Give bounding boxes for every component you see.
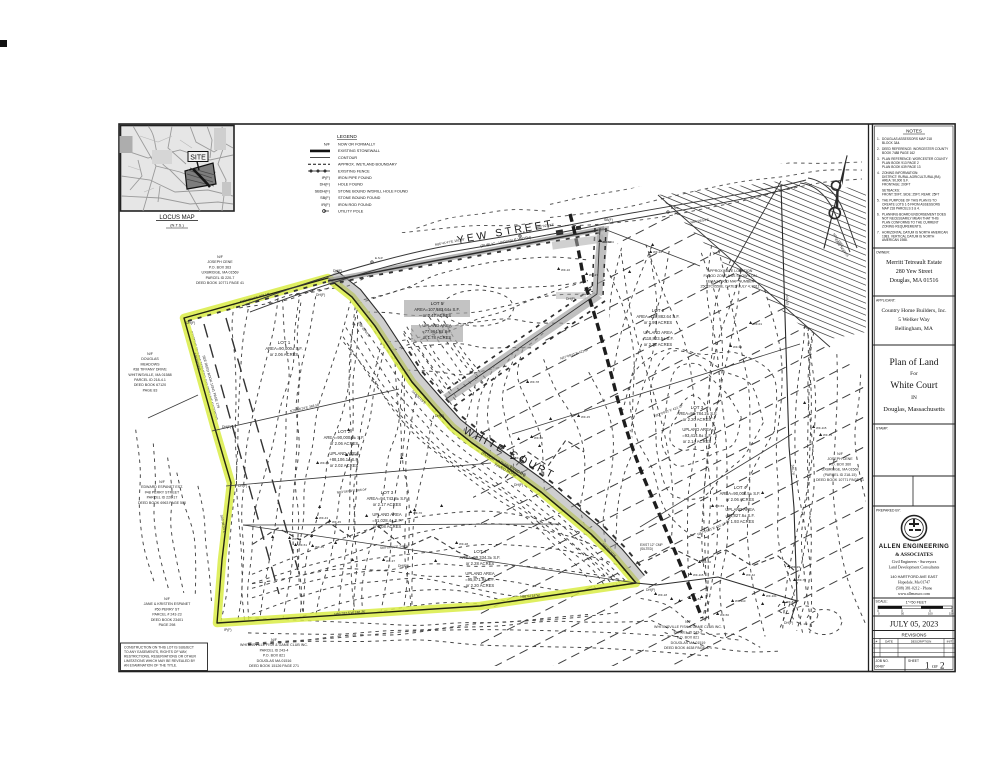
svg-text:=95,871.9± S.F.: =95,871.9± S.F. [465,577,494,582]
svg-text:1.: 1. [877,137,880,141]
svg-text:NOTES: NOTES [906,129,922,134]
svg-text:UPLAND AREA: UPLAND AREA [372,512,402,517]
svg-text:=91,028.4± S.F.: =91,028.4± S.F. [372,518,401,523]
svg-text:or 2.20 ACRES: or 2.20 ACRES [683,417,712,422]
svg-text:AREA=96,784.2± S.F.: AREA=96,784.2± S.F. [677,411,718,416]
svg-text:NOW OR FORMALLY: NOW OR FORMALLY [338,143,376,147]
svg-text:WF-60: WF-60 [702,560,711,564]
svg-text:LOT 2: LOT 2 [338,429,351,434]
svg-text:6.: 6. [877,213,880,217]
svg-text:WF-42: WF-42 [746,573,755,577]
svg-text:EDWARD ESPANET EST.: EDWARD ESPANET EST. [141,485,183,489]
svg-text:UTILITY POLE: UTILITY POLE [338,210,364,214]
svg-text:www.allenassoc.com: www.allenassoc.com [898,592,930,596]
svg-text:WF-27: WF-27 [589,273,598,277]
svg-text:SITE: SITE [190,155,206,162]
svg-text:UXBRIDGE, MA 01568: UXBRIDGE, MA 01568 [822,468,859,472]
svg-text:or 2.06 ACRES: or 2.06 ACRES [330,441,359,446]
svg-text:IN: IN [911,395,917,401]
svg-text:P.O. BOX 360: P.O. BOX 360 [829,462,851,466]
svg-text:LOT 5: LOT 5 [431,301,444,306]
svg-text:#50 PERRY ST: #50 PERRY ST [155,607,181,611]
svg-text:N/F: N/F [837,452,844,456]
svg-text:5.: 5. [877,199,880,203]
svg-text:WF-92: WF-92 [534,436,543,440]
svg-text:25027C0558E, DATED JULY 4, 201: 25027C0558E, DATED JULY 4, 2011 [700,285,759,289]
svg-text:For: For [910,371,918,377]
svg-text:DH(F): DH(F) [566,297,575,301]
svg-text:CONSTRUCTION ON THIS LOT IS SU: CONSTRUCTION ON THIS LOT IS SUBJECT [124,646,194,650]
svg-text:(PARCEL ID 218-15): (PARCEL ID 218-15) [823,473,856,477]
svg-text:BLOCK 3&4.: BLOCK 3&4. [882,141,900,145]
svg-text:SHEET: SHEET [908,659,919,663]
svg-text:Merritt Tetreault Estate: Merritt Tetreault Estate [886,260,942,266]
svg-text:UPLAND AREA: UPLAND AREA [643,330,673,335]
svg-text:(508) 381-0212 - Phone: (508) 381-0212 - Phone [896,587,933,591]
svg-text:FRONTAGE: 200FT: FRONTAGE: 200FT [882,183,911,187]
svg-text:AREA=99,334.3± S.F.: AREA=99,334.3± S.F. [460,555,501,560]
svg-text:#38 TIFFANY DRIVE: #38 TIFFANY DRIVE [133,368,167,372]
svg-text:N/F: N/F [159,480,166,484]
svg-text:WF-22: WF-22 [653,250,662,254]
svg-text:AREA=90,000.0± S.F.: AREA=90,000.0± S.F. [324,435,365,440]
svg-text:DATE: DATE [885,640,893,644]
svg-text:DH(F): DH(F) [222,425,231,429]
svg-text:IRON PIPE FOUND: IRON PIPE FOUND [338,176,372,180]
svg-text:E.S.P.: E.S.P. [671,206,679,210]
svg-text:APPROXIMATE LOCATION: APPROXIMATE LOCATION [708,269,753,273]
svg-text:WF-01: WF-01 [753,322,762,326]
svg-text:or 2.17 ACRES: or 2.17 ACRES [373,502,402,507]
svg-text:LOT 2: LOT 2 [652,308,665,313]
svg-text:WF-53: WF-53 [715,504,724,508]
svg-text:WHITINSVILLE FISH & GAME CLUB: WHITINSVILLE FISH & GAME CLUB INC. [654,625,722,629]
svg-text:BOOK 7488 PAGE 162: BOOK 7488 PAGE 162 [882,151,915,155]
svg-text:APPROX. WETLAND BOUNDARY: APPROX. WETLAND BOUNDARY [338,163,397,167]
svg-text:1: 1 [925,661,930,671]
svg-text:AREA=128,882.64 S.F.: AREA=128,882.64 S.F. [636,314,679,319]
svg-text:4.: 4. [877,171,880,175]
svg-text:JOSEPH CENE: JOSEPH CENE [207,260,233,264]
svg-text:DH(F): DH(F) [316,293,325,297]
svg-text:WF-69: WF-69 [320,461,329,465]
svg-text:WF-50: WF-50 [720,613,729,617]
svg-text:PLAN BOOK 639 PAGE 13: PLAN BOOK 639 PAGE 13 [882,165,921,169]
svg-text:WF-29: WF-29 [791,565,800,569]
svg-text:00487: 00487 [876,665,885,669]
svg-text:INIT: INIT [947,640,953,644]
svg-text:WF-10: WF-10 [561,268,570,272]
svg-text:OF: OF [932,664,938,669]
svg-text:FLOOD ZONE A AS SHOWN ON: FLOOD ZONE A AS SHOWN ON [703,274,757,278]
svg-text:or 2.06 ACRES: or 2.06 ACRES [726,497,755,502]
svg-text:LEGEND: LEGEND [337,134,357,140]
svg-text:2: 2 [940,661,945,671]
svg-text:or 2.06 ACRES: or 2.06 ACRES [270,352,299,357]
svg-text:PARCEL ID 220-17: PARCEL ID 220-17 [147,496,178,500]
svg-text:FRONT: 50FT, SIDE: 25FT, REAR: FRONT: 50FT, SIDE: 25FT, REAR: 25FT [882,193,939,197]
svg-text:=93,414.8± S.F.: =93,414.8± S.F. [682,433,711,438]
svg-text:WF-78: WF-78 [530,380,539,384]
svg-text:DOUGLAS: DOUGLAS [141,357,159,361]
svg-text:Douglas, MA 01516: Douglas, MA 01516 [890,278,939,284]
svg-text:DEED BOOK 15126 PAGE 271: DEED BOOK 15126 PAGE 271 [249,664,299,668]
svg-text:PARCEL ID 243-4: PARCEL ID 243-4 [260,648,289,652]
svg-text:PAGE 83: PAGE 83 [143,388,158,392]
svg-text:AREA=107,683.64± S.F.: AREA=107,683.64± S.F. [414,307,459,312]
svg-text:WHITINSVILLE FISH & GAME CLUB: WHITINSVILLE FISH & GAME CLUB INC. [240,643,308,647]
svg-text:LIMITATIONS WHICH MAY BE REVEA: LIMITATIONS WHICH MAY BE REVEALED BY [124,659,196,663]
svg-text:N/F: N/F [164,597,171,601]
svg-text:N/F: N/F [271,638,278,642]
svg-text:208.33': 208.33' [785,295,789,306]
svg-text:P.O. BOX 821: P.O. BOX 821 [677,636,699,640]
svg-text:DEED BOOK 23401: DEED BOOK 23401 [151,618,183,622]
svg-text:AREA=90,000.5± S.F.: AREA=90,000.5± S.F. [720,491,761,496]
svg-text:PARCEL ID 220-7: PARCEL ID 220-7 [206,276,235,280]
svg-text:ZONING REQUIREMENTS.: ZONING REQUIREMENTS. [882,224,922,228]
svg-text:WF-45: WF-45 [823,433,832,437]
svg-text:or 2.28 ACRES: or 2.28 ACRES [466,561,495,566]
svg-text:or 1.93 ACRES: or 1.93 ACRES [726,519,755,524]
svg-text:STONE BOUND FOUND: STONE BOUND FOUND [338,196,381,200]
svg-text:SB(F): SB(F) [604,218,613,222]
svg-text:WF-93: WF-93 [292,537,301,541]
svg-text:MEADOWS: MEADOWS [141,362,161,366]
svg-text:Douglas, Massachusetts: Douglas, Massachusetts [883,406,945,413]
svg-text:WF-28: WF-28 [459,542,468,546]
svg-text:UPLAND AREA: UPLAND AREA [422,323,452,328]
svg-text:TO ANY EASEMENTS, RIGHTS OF WA: TO ANY EASEMENTS, RIGHTS OF WAY, [124,650,188,654]
svg-text:DEED BOOK 6963 PAGE 500: DEED BOOK 6963 PAGE 500 [138,501,186,505]
svg-text:DH(F): DH(F) [320,183,331,187]
svg-text:UPLAND AREA: UPLAND AREA [682,427,712,432]
svg-text:2.: 2. [877,147,880,151]
svg-text:APPLICANT:: APPLICANT: [876,299,895,303]
svg-text:MAP 218 PARCELS 3 & 4.: MAP 218 PARCELS 3 & 4. [882,207,920,211]
svg-text:or 2.72 ACRES: or 2.72 ACRES [644,342,673,347]
svg-text:DH(F): DH(F) [514,483,523,487]
svg-text:DEED BOOK 10771 PAGE 41: DEED BOOK 10771 PAGE 41 [196,281,244,285]
svg-text:SB(F): SB(F) [320,196,331,200]
svg-text:+88,106.1± S.F.: +88,106.1± S.F. [329,457,358,462]
svg-text:WF-45: WF-45 [332,520,341,524]
svg-text:P.O. BOX 821: P.O. BOX 821 [263,654,285,658]
svg-text:White Court: White Court [890,381,938,391]
svg-text:UPLAND AREA: UPLAND AREA [329,451,359,456]
svg-text:DH(F): DH(F) [333,269,342,273]
svg-text:150: 150 [949,612,954,616]
svg-text:5 Welker Way: 5 Welker Way [898,317,930,323]
svg-text:DH(F): DH(F) [398,564,407,568]
svg-text:JULY 05, 2023: JULY 05, 2023 [890,620,938,629]
svg-text:WF-101: WF-101 [766,594,777,598]
svg-text:LOCUS MAP: LOCUS MAP [159,215,194,221]
svg-text:SCALE:: SCALE: [876,600,888,604]
svg-text:WF-94: WF-94 [733,345,742,349]
svg-text:or 2.95 ACRES: or 2.95 ACRES [644,320,673,325]
svg-text:N/F: N/F [324,143,331,147]
svg-text:WF-37: WF-37 [386,559,395,563]
svg-text:OWNER:: OWNER: [876,251,890,255]
svg-text:=83,827.6± S.F.: =83,827.6± S.F. [725,513,754,518]
svg-text:Plan of Land: Plan of Land [889,357,938,368]
svg-text:140 HARTFORD AVE EAST: 140 HARTFORD AVE EAST [890,575,938,579]
svg-text:STONE BOUND W/DRILL HOLE FOUND: STONE BOUND W/DRILL HOLE FOUND [338,189,408,193]
svg-text:REVISIONS: REVISIONS [901,633,926,638]
svg-text:N/F: N/F [217,255,224,259]
svg-text:WF-45: WF-45 [315,545,324,549]
svg-text:JANE & KRISTEN ESPANET: JANE & KRISTEN ESPANET [144,602,191,606]
svg-text:DEED BOOK 67120: DEED BOOK 67120 [134,383,166,387]
svg-text:WF-115: WF-115 [816,426,827,430]
svg-text:WF-104: WF-104 [603,240,614,244]
svg-text:LOT 4: LOT 4 [734,485,747,490]
svg-text:AMERICAN 1988.: AMERICAN 1988. [882,238,908,242]
svg-text:N/F: N/F [147,352,154,356]
svg-text:=77,964.6± S.F.: =77,964.6± S.F. [422,329,451,334]
svg-text:UPLAND AREA: UPLAND AREA [465,571,495,576]
svg-text:PARCEL ID 218-4.1: PARCEL ID 218-4.1 [134,378,166,382]
svg-text:P.O. BOX 363: P.O. BOX 363 [209,265,231,269]
svg-text:PAGE 298: PAGE 298 [159,623,176,627]
svg-text:3.: 3. [877,157,880,161]
svg-text:LOT 1: LOT 1 [278,340,291,345]
svg-text:50: 50 [901,612,905,616]
svg-text:PARCEL ID 243-2: PARCEL ID 243-2 [674,630,703,634]
svg-text:FEMA FLOOD MAP NUMBER: FEMA FLOOD MAP NUMBER [706,279,755,283]
svg-text:WF-82: WF-82 [786,600,795,604]
svg-text:DH(F): DH(F) [435,414,444,418]
svg-text:7.: 7. [877,230,880,234]
svg-text:WF-43: WF-43 [319,516,328,520]
svg-text:LOT 3: LOT 3 [381,490,394,495]
svg-text:LOT 4: LOT 4 [474,549,487,554]
svg-text:IP(F): IP(F) [224,628,232,632]
svg-text:N/F: N/F [685,620,692,624]
svg-text:HOLE FOUND: HOLE FOUND [338,183,363,187]
svg-text:AREA=90,000± S.F.: AREA=90,000± S.F. [265,346,302,351]
svg-text:(N.T.S.): (N.T.S.) [170,223,184,228]
svg-text:or 2.20 ACRES: or 2.20 ACRES [466,583,495,588]
svg-text:SBDH(F): SBDH(F) [315,189,331,193]
svg-text:100: 100 [928,612,933,616]
svg-text:IP(F): IP(F) [322,176,331,180]
svg-text:Land Development Consultants: Land Development Consultants [889,565,940,570]
svg-text:=118,823.5± S.F.: =118,823.5± S.F. [642,336,673,341]
svg-text:or 2.14 ACRES: or 2.14 ACRES [683,439,712,444]
svg-text:DEED BOOK 4638 PAGE 471: DEED BOOK 4638 PAGE 471 [664,646,712,650]
svg-text:EXISTING STONEWALL: EXISTING STONEWALL [338,149,380,153]
svg-text:WF-84: WF-84 [692,597,701,601]
svg-text:E.S.P.: E.S.P. [375,256,383,260]
svg-text:IRON ROD FOUND: IRON ROD FOUND [338,203,372,207]
svg-text:DOUGLAS MA 01516: DOUGLAS MA 01516 [257,659,292,663]
svg-text:DH(F): DH(F) [238,484,247,488]
svg-text:WF-76: WF-76 [413,511,422,515]
svg-text:DEED BOOK 10771 PAGE 41: DEED BOOK 10771 PAGE 41 [816,478,864,482]
svg-text:LOT 3: LOT 3 [691,405,704,410]
svg-text:or 1.78 ACRES: or 1.78 ACRES [423,335,452,340]
svg-text:DH(F): DH(F) [646,588,655,592]
svg-text:or 2.08 ACRES: or 2.08 ACRES [373,524,402,529]
svg-text:DH(F): DH(F) [186,321,195,325]
svg-text:DOUGLAS MA 01519: DOUGLAS MA 01519 [671,641,706,645]
svg-text:UPLAND AREA: UPLAND AREA [725,507,755,512]
svg-text:(SILTED): (SILTED) [640,547,653,551]
svg-text:or 2.47 ACRES: or 2.47 ACRES [423,313,452,318]
svg-text:280 Yew Street: 280 Yew Street [896,269,933,275]
svg-text:RESTRICTIONS, RESERVATIONS OR: RESTRICTIONS, RESERVATIONS OR OTHER [124,655,197,659]
svg-text:WF-110: WF-110 [735,599,746,603]
svg-text:WF-115: WF-115 [693,573,704,577]
svg-text:WHITINSVILLE, MA 01588: WHITINSVILLE, MA 01588 [128,373,171,377]
svg-text:Civil Engineers - Surveyors: Civil Engineers - Surveyors [892,559,937,564]
svg-text:JOB NO.: JOB NO. [876,659,889,663]
svg-text:#48 PERRY STREET: #48 PERRY STREET [145,490,180,494]
svg-text:DESCRIPTION: DESCRIPTION [911,640,932,644]
svg-text:CONTOUR: CONTOUR [338,156,357,160]
svg-text:IR(F): IR(F) [321,203,330,207]
svg-text:WF-18: WF-18 [658,593,667,597]
svg-text:ALLEN ENGINEERING: ALLEN ENGINEERING [879,544,949,550]
svg-text:WF-15: WF-15 [581,415,590,419]
svg-text:PREPARED BY:: PREPARED BY: [876,509,901,513]
svg-text:or 2.02 ACRES: or 2.02 ACRES [330,463,359,468]
svg-text:STAMP:: STAMP: [876,427,888,431]
svg-text:WF-51: WF-51 [298,543,307,547]
svg-text:JOSEPH CENE: JOSEPH CENE [827,457,853,461]
svg-text:1"=50 FEET: 1"=50 FEET [906,601,927,605]
svg-text:UXBRIDGE, MA 01569: UXBRIDGE, MA 01569 [202,271,239,275]
svg-text:AREA=94,743.8± S.F.: AREA=94,743.8± S.F. [367,496,408,501]
svg-text:346.79': 346.79' [791,464,796,475]
svg-text:Bellingham, MA: Bellingham, MA [895,326,933,332]
svg-text:& ASSOCIATES: & ASSOCIATES [895,552,933,558]
svg-text:AN EXAMINATION OF THE TITLE.: AN EXAMINATION OF THE TITLE. [124,664,177,668]
svg-text:PARCEL # 243-23: PARCEL # 243-23 [152,613,181,617]
svg-text:WF-78: WF-78 [797,578,806,582]
svg-text:Country Home Builders, Inc.: Country Home Builders, Inc. [881,308,947,314]
svg-text:EXISTING FENCE: EXISTING FENCE [338,169,370,173]
svg-text:DH(F): DH(F) [784,621,793,625]
